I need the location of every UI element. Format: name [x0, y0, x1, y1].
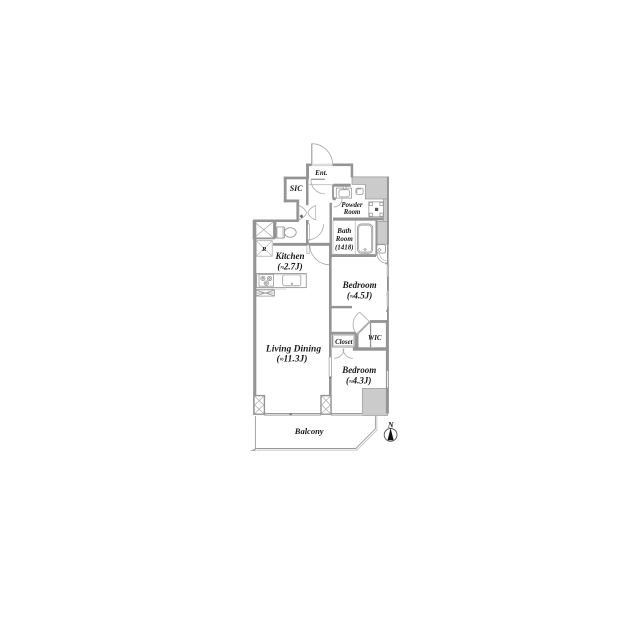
svg-text:(1418): (1418) — [335, 244, 354, 252]
svg-text:Closet: Closet — [335, 339, 353, 346]
svg-text:Room: Room — [335, 235, 354, 243]
svg-text:Kitchen: Kitchen — [274, 251, 304, 261]
svg-text:WIC: WIC — [368, 334, 382, 342]
svg-text:Room: Room — [343, 209, 361, 216]
svg-text:R: R — [261, 246, 267, 253]
svg-text:Bedroom: Bedroom — [341, 365, 376, 375]
svg-text:Bedroom: Bedroom — [342, 280, 377, 290]
svg-text:Balcony: Balcony — [294, 426, 324, 436]
svg-text:SIC: SIC — [290, 184, 304, 193]
svg-text:Living Dining: Living Dining — [265, 344, 321, 354]
svg-text:Ent.: Ent. — [314, 169, 328, 177]
